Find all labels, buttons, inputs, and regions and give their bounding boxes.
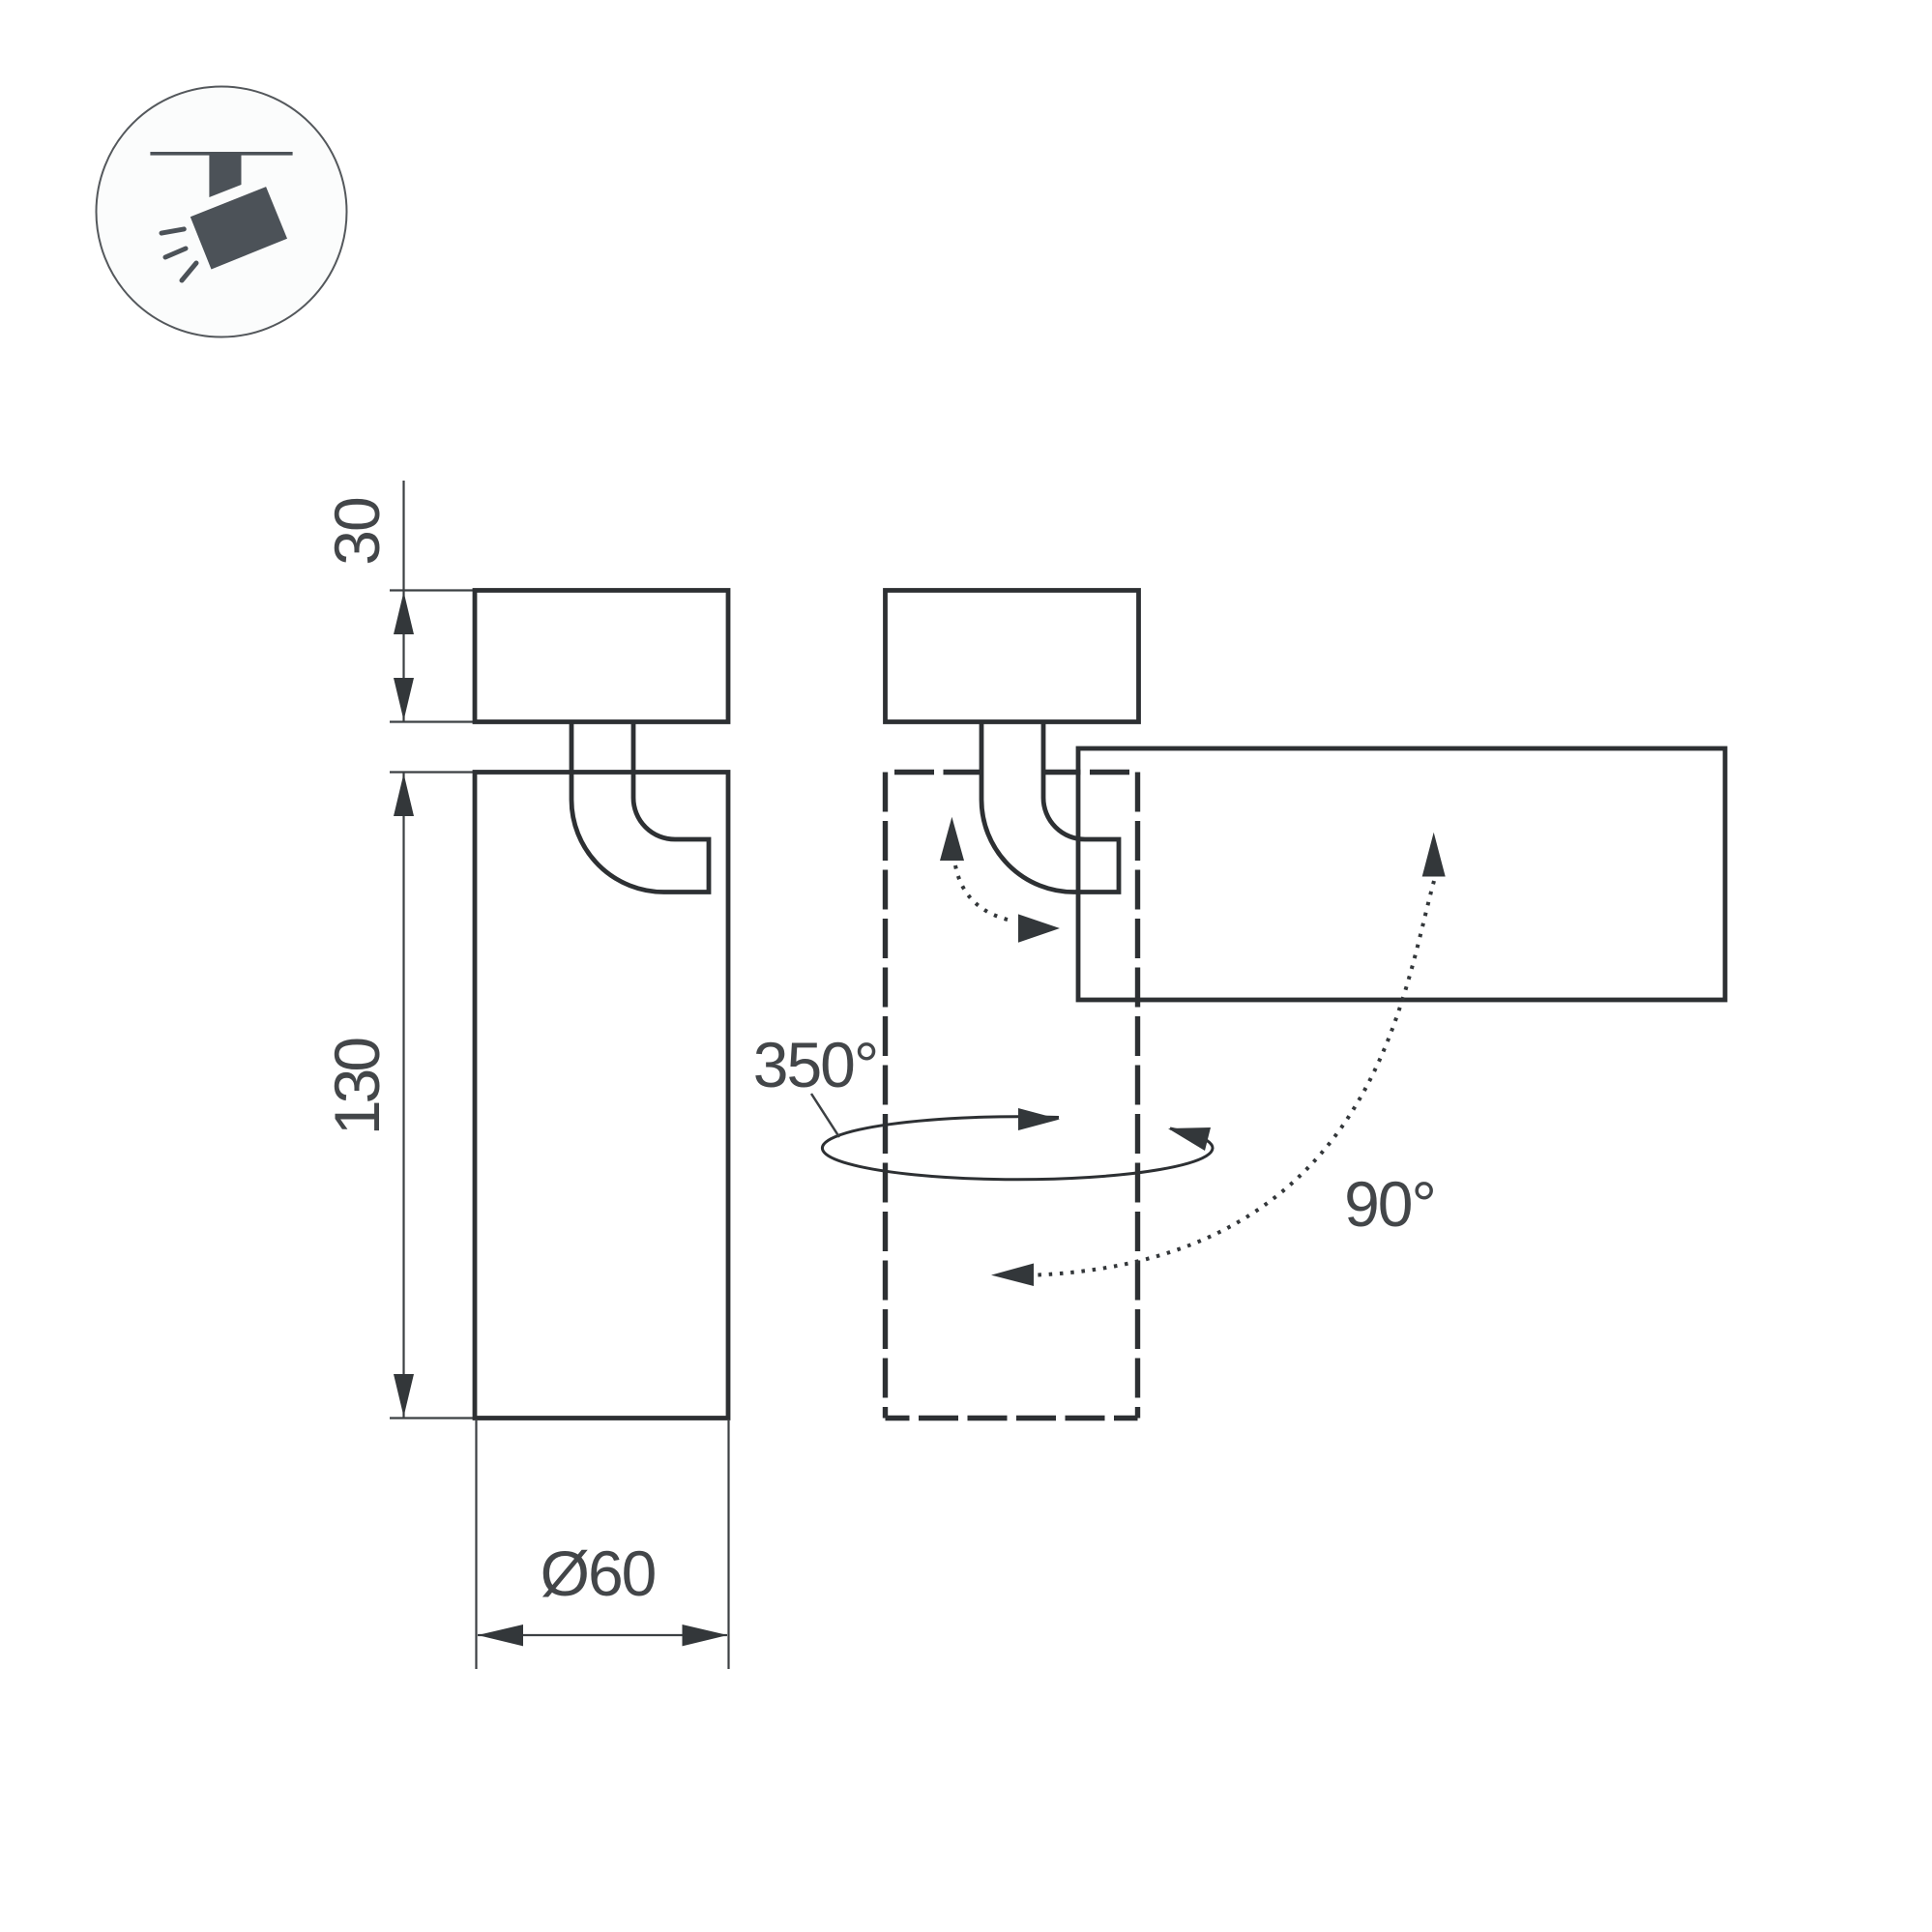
svg-text:350°: 350°: [753, 1029, 878, 1100]
svg-text:30: 30: [321, 498, 393, 566]
svg-text:Ø60: Ø60: [541, 1537, 656, 1609]
svg-text:130: 130: [321, 1039, 393, 1135]
svg-text:90°: 90°: [1344, 1168, 1435, 1240]
